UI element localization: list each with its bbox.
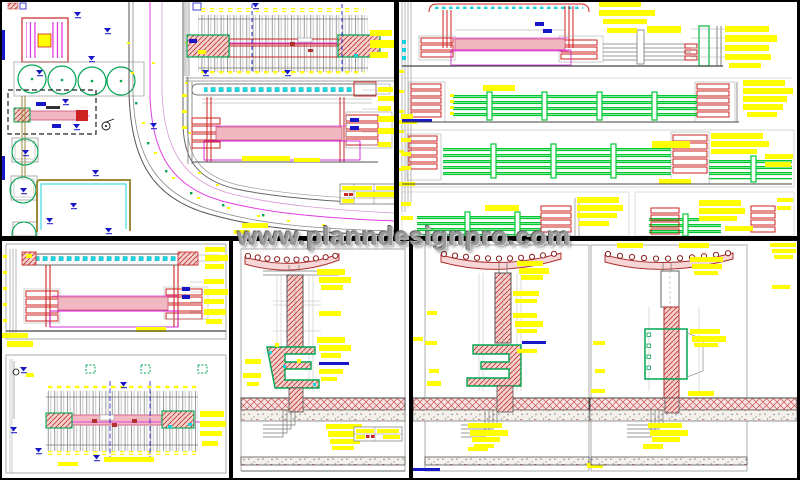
panel-section-center (233, 241, 409, 478)
railing-elevation-3-pair (401, 192, 794, 236)
cad-sheet: www.planndesignpro.com (0, 0, 800, 480)
annotation-labels (599, 2, 777, 68)
panel-sections-pair (413, 241, 797, 478)
mini-title-block (354, 427, 402, 441)
railing-elevation-2 (399, 130, 794, 187)
upper-elevation (2, 244, 228, 347)
foundation-band (241, 398, 405, 410)
edge-annotations (770, 243, 796, 289)
gateway-elevation (402, 2, 777, 68)
pergola-plan-2 (6, 355, 226, 473)
panel-site-plan (2, 2, 394, 236)
bench-profile (267, 347, 319, 388)
section-detail (241, 249, 405, 471)
tree-row (14, 62, 144, 96)
panel-railing-elevations (399, 2, 797, 236)
pergola-plan (185, 2, 394, 81)
annotation-labels (413, 261, 549, 451)
bench-profile (467, 345, 521, 386)
panel-elevation-pergola (2, 241, 229, 478)
walkway-structure-plan (182, 77, 394, 164)
detail-callout-box (8, 90, 114, 134)
section-detail-right (587, 243, 797, 471)
section-detail-left (413, 245, 589, 471)
railing-elevation-1 (399, 78, 793, 124)
mini-title-block (340, 184, 394, 204)
annotation-labels (401, 197, 793, 231)
